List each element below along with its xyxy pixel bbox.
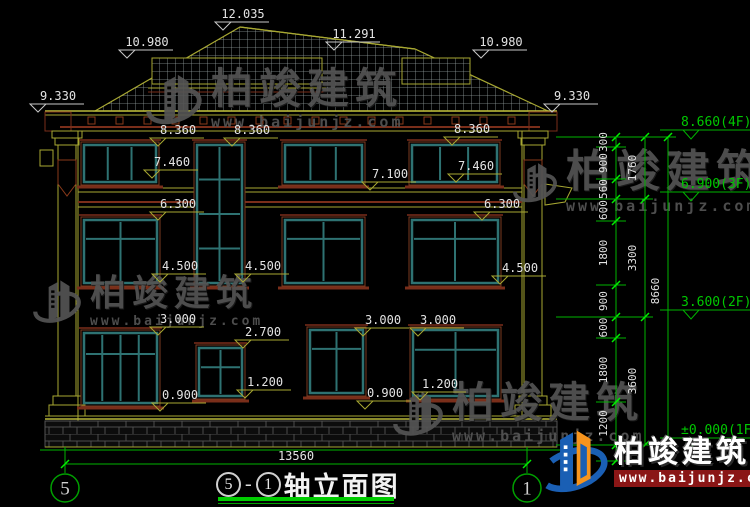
level-marker-triangle <box>683 310 699 319</box>
elevation-marker-triangle <box>150 138 166 146</box>
brand-url-text: www.baijunjz.com <box>614 470 750 487</box>
brand-logo-icon <box>536 423 610 501</box>
dim-chain-value: 1760 <box>626 155 639 182</box>
elevation-value: 7.100 <box>372 167 408 181</box>
elevation-marker-triangle <box>215 22 231 30</box>
elevation-marker-triangle <box>473 50 489 58</box>
dim-chain-value: 8660 <box>649 278 662 305</box>
elevation-value: 7.460 <box>458 159 494 173</box>
facade-elevation-marker: 1.200 <box>412 377 466 400</box>
facade-elevation-marker: 6.300 <box>150 197 204 220</box>
roof-elevation-marker: 12.035 <box>215 7 269 30</box>
facade-elevation-marker: 3.000 <box>410 313 464 336</box>
facade-elevation-marker: 3.000 <box>355 313 409 336</box>
elevation-value: 10.980 <box>479 35 522 49</box>
axis-bubble-left: 5 <box>51 474 79 502</box>
facade-elevation-marker: 6.300 <box>474 197 528 220</box>
elevation-marker-triangle <box>444 137 460 145</box>
elevation-value: 4.500 <box>502 261 538 275</box>
elevation-value: 3.000 <box>420 313 456 327</box>
brand-logo-block: 柏竣建筑 www.baijunjz.com <box>536 423 750 501</box>
facade-elevation-marker: 4.500 <box>152 259 206 282</box>
elevation-marker-triangle <box>412 392 428 400</box>
elevation-value: 9.330 <box>40 89 76 103</box>
floor-level-marker: 6.900(3F) <box>556 177 750 201</box>
elevation-value: 7.460 <box>154 155 190 169</box>
floor-level-marker: 8.660(4F) <box>556 115 750 139</box>
roof-elevation-marker: 10.980 <box>119 35 173 58</box>
elevation-marker-triangle <box>224 138 240 146</box>
elevation-value: 3.000 <box>365 313 401 327</box>
dim-chain-value: 1800 <box>597 357 610 384</box>
elevation-value: 2.700 <box>245 325 281 339</box>
dim-chain-value: 900 <box>597 153 610 173</box>
roof-elevation-marker: 9.330 <box>30 89 84 112</box>
elevation-marker-triangle <box>144 170 160 178</box>
facade-elevation-marker: 8.360 <box>444 122 498 145</box>
elevation-marker-triangle <box>235 274 251 282</box>
facade-elevation-marker: 3.000 <box>150 312 204 335</box>
level-marker-triangle <box>683 192 699 201</box>
elevation-marker-triangle <box>150 327 166 335</box>
elevation-value: 0.900 <box>367 386 403 400</box>
title-underline <box>218 497 394 501</box>
elevation-value: 8.360 <box>234 123 270 137</box>
dim-chain-value: 560 <box>597 179 610 199</box>
roof-elevation-marker: 9.330 <box>544 89 598 112</box>
floor-level-label: 8.660(4F) <box>681 115 750 130</box>
elevation-marker-triangle <box>448 174 464 182</box>
elevation-marker-triangle <box>150 212 166 220</box>
elevation-value: 10.980 <box>125 35 168 49</box>
dim-chain-value: 600 <box>597 200 610 220</box>
elevation-marker-triangle <box>119 50 135 58</box>
axis-bubble-right-number: 1 <box>522 479 532 500</box>
facade-elevation-marker: 2.700 <box>235 325 289 348</box>
title-dash: - <box>245 473 252 496</box>
facade-elevation-marker: 7.460 <box>448 159 502 182</box>
elevation-marker-triangle <box>152 403 168 411</box>
elevation-marker-triangle <box>152 274 168 282</box>
facade-elevation-marker: 4.500 <box>235 259 289 282</box>
elevation-value: 3.000 <box>160 312 196 326</box>
dim-chain-value: 600 <box>597 318 610 338</box>
dim-chain-value: 3300 <box>626 245 639 272</box>
facade-elevation-marker: 8.360 <box>150 123 204 146</box>
dim-chain-value: 300 <box>597 132 610 152</box>
axis-bubble-left-number: 5 <box>60 479 70 500</box>
dim-chain-value: 900 <box>597 291 610 311</box>
facade-elevation-marker: 7.460 <box>144 155 198 178</box>
elevation-marker-triangle <box>235 340 251 348</box>
title-underline-thin <box>218 503 394 504</box>
elevation-value: 0.900 <box>162 388 198 402</box>
elevation-marker-triangle <box>355 328 371 336</box>
elevation-marker-triangle <box>30 104 46 112</box>
elevation-value: 4.500 <box>245 259 281 273</box>
elevation-value: 4.500 <box>162 259 198 273</box>
title-axis-circle-right: 1 <box>256 472 281 497</box>
elevation-value: 12.035 <box>221 7 264 21</box>
elevation-marker-triangle <box>410 328 426 336</box>
elevation-value: 1.200 <box>422 377 458 391</box>
elevation-value: 6.300 <box>160 197 196 211</box>
title-axis-circle-left: 5 <box>216 472 241 497</box>
roof-elevation-marker: 10.980 <box>473 35 527 58</box>
elevation-marker-triangle <box>357 401 373 409</box>
elevation-marker-triangle <box>544 104 560 112</box>
level-marker-triangle <box>683 130 699 139</box>
facade-elevation-marker: 7.100 <box>362 167 416 190</box>
dim-chain-value: 1800 <box>597 240 610 267</box>
title-axis-left-number: 5 <box>225 476 233 494</box>
dim-chain-value: 3600 <box>626 368 639 395</box>
title-axis-right-number: 1 <box>264 476 272 494</box>
cad-elevation-canvas: 柏竣建筑 www.baijunjz.com 柏竣建筑 www.baijunjz.… <box>0 0 750 507</box>
elevation-value: 1.200 <box>247 375 283 389</box>
floor-level-label: 6.900(3F) <box>681 177 750 192</box>
elevation-value: 9.330 <box>554 89 590 103</box>
facade-elevation-marker: 8.360 <box>224 123 278 146</box>
elevation-marker-triangle <box>237 390 253 398</box>
elevation-marker-triangle <box>474 212 490 220</box>
elevation-value: 8.360 <box>160 123 196 137</box>
elevation-marker-triangle <box>492 276 508 284</box>
elevation-marker-triangle <box>362 182 378 190</box>
facade-elevation-marker: 0.900 <box>357 386 411 409</box>
floor-level-label: 3.600(2F) <box>681 295 750 310</box>
facade-elevation-marker: 1.200 <box>237 375 291 398</box>
brand-name-text: 柏竣建筑 <box>614 437 750 469</box>
elevation-value: 8.360 <box>454 122 490 136</box>
elevation-value: 6.300 <box>484 197 520 211</box>
elevation-value: 11.291 <box>332 27 375 41</box>
elevation-marker-triangle <box>326 42 342 50</box>
facade-elevation-marker: 0.900 <box>152 388 206 411</box>
facade-elevation-marker: 4.500 <box>492 261 546 284</box>
roof-elevation-marker: 11.291 <box>326 27 380 50</box>
total-width-dim-text: 13560 <box>278 449 314 463</box>
